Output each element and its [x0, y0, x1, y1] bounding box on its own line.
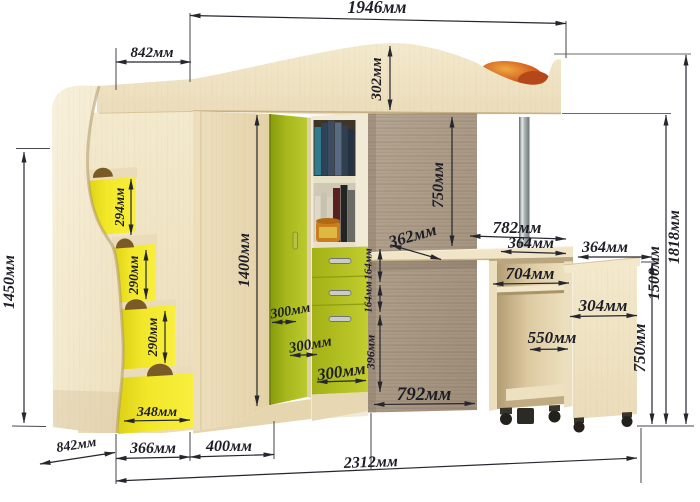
svg-text:364мм: 364мм	[581, 239, 628, 256]
svg-text:1400мм: 1400мм	[236, 233, 253, 287]
svg-text:750мм: 750мм	[430, 162, 447, 208]
svg-text:2312мм: 2312мм	[343, 453, 399, 472]
svg-text:1450мм: 1450мм	[1, 255, 18, 309]
svg-text:164мм: 164мм	[363, 248, 375, 280]
svg-text:750мм: 750мм	[630, 323, 649, 372]
svg-text:704мм: 704мм	[506, 264, 555, 283]
svg-text:366мм: 366мм	[129, 440, 176, 457]
svg-text:294мм: 294мм	[112, 188, 127, 228]
svg-text:550мм: 550мм	[528, 328, 577, 347]
svg-text:304мм: 304мм	[578, 296, 628, 315]
svg-text:396мм: 396мм	[364, 335, 378, 370]
svg-text:164мм: 164мм	[363, 281, 375, 313]
svg-text:792мм: 792мм	[397, 384, 452, 405]
svg-text:1818мм: 1818мм	[666, 210, 683, 264]
svg-text:400мм: 400мм	[205, 438, 252, 455]
svg-text:290мм: 290мм	[145, 318, 160, 358]
svg-text:1946мм: 1946мм	[348, 0, 407, 17]
svg-text:364мм: 364мм	[507, 235, 554, 252]
svg-text:842мм: 842мм	[130, 45, 173, 61]
svg-text:302мм: 302мм	[369, 57, 385, 101]
svg-text:290мм: 290мм	[126, 256, 141, 296]
svg-text:348мм: 348мм	[136, 405, 178, 420]
svg-text:1500мм: 1500мм	[646, 246, 663, 300]
